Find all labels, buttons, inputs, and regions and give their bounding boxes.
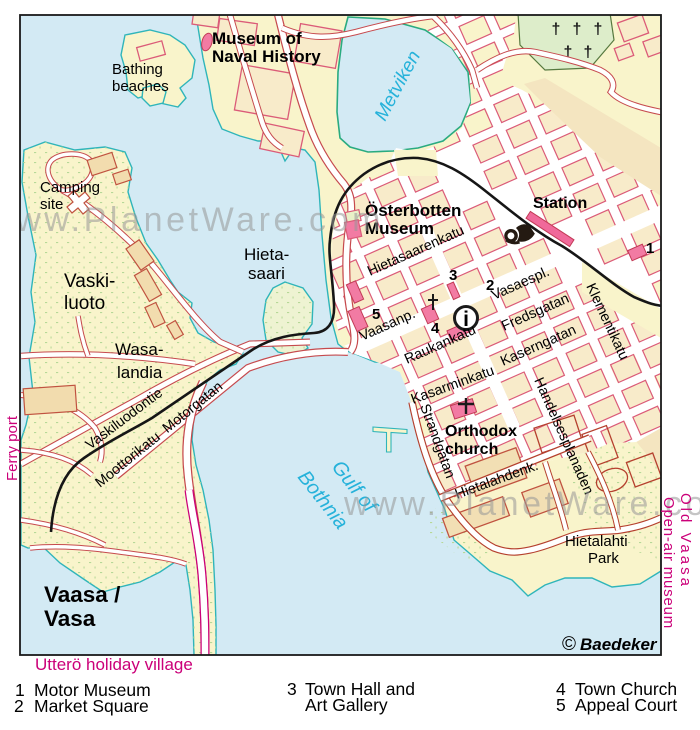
svg-text:3: 3 [287, 679, 297, 699]
svg-text:Museum of: Museum of [212, 29, 302, 48]
svg-text:Utterö holiday village: Utterö holiday village [35, 655, 193, 674]
svg-text:2: 2 [14, 696, 24, 716]
svg-text:†: † [594, 21, 603, 38]
svg-text:1: 1 [646, 240, 654, 257]
svg-text:©: © [562, 634, 576, 655]
svg-text:Park: Park [588, 550, 619, 567]
svg-text:Hieta-: Hieta- [244, 245, 289, 264]
svg-text:Station: Station [533, 195, 587, 212]
svg-text:Open-air museum: Open-air museum [660, 497, 677, 629]
svg-text:Orthodox: Orthodox [445, 423, 517, 440]
svg-text:www.PlanetWare.com: www.PlanetWare.com [343, 485, 700, 523]
svg-text:Bathing: Bathing [112, 61, 163, 78]
svg-text:Wasa-: Wasa- [115, 340, 164, 359]
svg-text:†: † [573, 21, 582, 38]
svg-text:Market Square: Market Square [34, 696, 149, 716]
svg-text:Camping: Camping [40, 179, 100, 196]
svg-text:4: 4 [431, 320, 440, 337]
svg-text:Art Gallery: Art Gallery [305, 695, 388, 715]
svg-text:beaches: beaches [112, 78, 169, 95]
svg-text:saari: saari [248, 264, 285, 283]
svg-text:luoto: luoto [64, 293, 105, 314]
svg-text:†: † [552, 21, 561, 38]
svg-text:Appeal Court: Appeal Court [575, 695, 677, 715]
svg-text:Baedeker: Baedeker [580, 635, 658, 654]
svg-text:church: church [445, 441, 498, 458]
svg-text:5: 5 [556, 695, 566, 715]
svg-text:www.PlanetWare.com: www.PlanetWare.com [0, 201, 384, 239]
svg-text:Vasa: Vasa [44, 606, 96, 631]
svg-text:Hietalahti: Hietalahti [565, 533, 628, 550]
svg-text:†: † [584, 44, 593, 61]
svg-text:Old Vaasa: Old Vaasa [677, 493, 694, 589]
svg-text:Naval History: Naval History [212, 47, 321, 66]
svg-text:Vaasa /: Vaasa / [44, 582, 121, 607]
svg-text:Ferry port: Ferry port [4, 415, 21, 481]
svg-text:3: 3 [449, 267, 457, 284]
svg-text:Vaski-: Vaski- [64, 271, 115, 292]
svg-text:landia: landia [117, 363, 163, 382]
